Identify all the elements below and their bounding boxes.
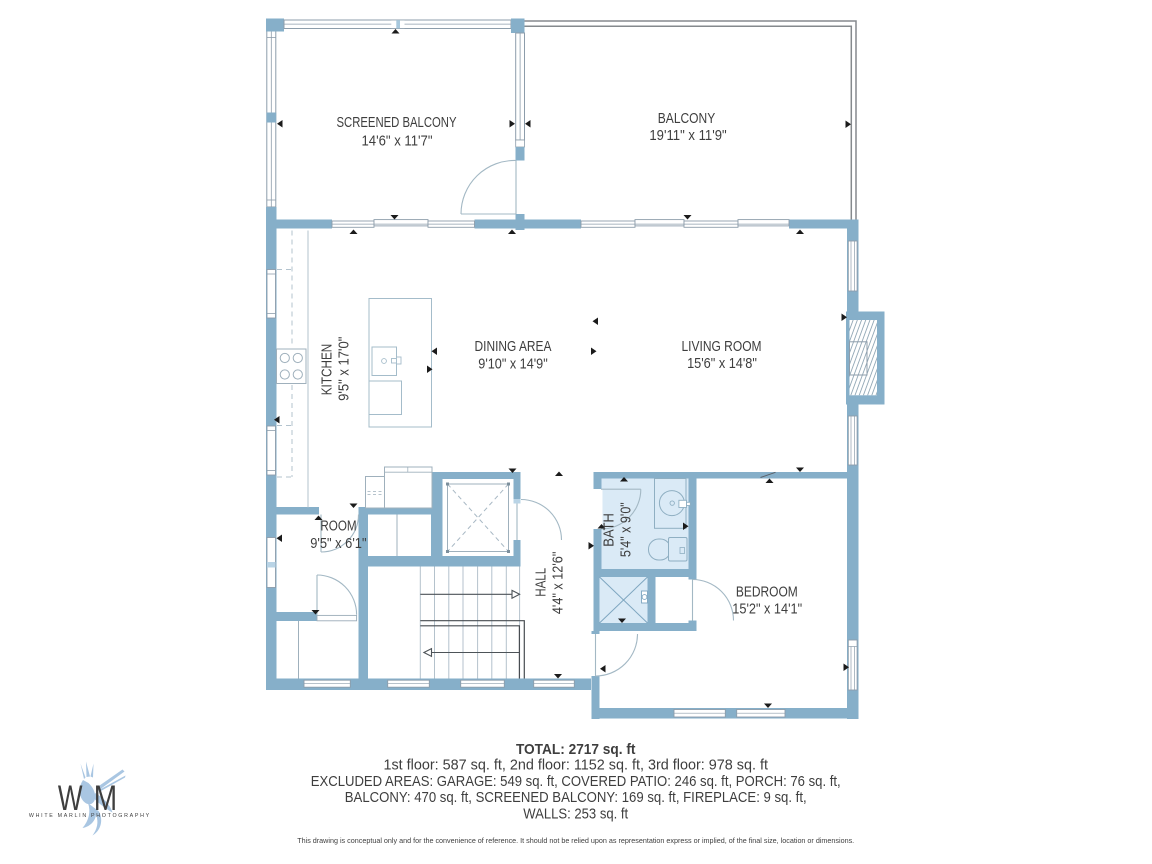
svg-text:14'6" x 11'7": 14'6" x 11'7" bbox=[362, 132, 433, 149]
svg-text:BATH: BATH bbox=[601, 513, 617, 547]
svg-text:HALL: HALL bbox=[532, 568, 549, 597]
svg-text:15'2" x 14'1": 15'2" x 14'1" bbox=[732, 601, 802, 617]
svg-text:WHITE MARLIN PHOTOGRAPHY: WHITE MARLIN PHOTOGRAPHY bbox=[29, 813, 151, 819]
svg-text:9'5" x 17'0": 9'5" x 17'0" bbox=[335, 337, 352, 401]
svg-text:This drawing is conceptual onl: This drawing is conceptual only and for … bbox=[297, 836, 854, 845]
svg-text:15'6" x 14'8": 15'6" x 14'8" bbox=[687, 355, 757, 371]
svg-text:4'4" x 12'6": 4'4" x 12'6" bbox=[550, 552, 566, 615]
svg-text:9'10" x 14'9": 9'10" x 14'9" bbox=[478, 356, 548, 372]
svg-text:M: M bbox=[94, 778, 117, 818]
svg-text:WALLS: 253 sq. ft: WALLS: 253 sq. ft bbox=[523, 806, 628, 822]
svg-text:EXCLUDED AREAS: GARAGE: 549 sq: EXCLUDED AREAS: GARAGE: 549 sq. ft, COVE… bbox=[311, 773, 841, 789]
svg-text:KITCHEN: KITCHEN bbox=[318, 344, 335, 396]
svg-text:ROOM: ROOM bbox=[320, 517, 356, 534]
svg-text:BALCONY: 470 sq. ft, SCREENED: BALCONY: 470 sq. ft, SCREENED BALCONY: 1… bbox=[345, 790, 807, 806]
svg-text:DINING AREA: DINING AREA bbox=[475, 338, 552, 354]
svg-text:19'11" x 11'9": 19'11" x 11'9" bbox=[649, 126, 726, 143]
svg-text:SCREENED BALCONY: SCREENED BALCONY bbox=[337, 114, 457, 131]
svg-text:9'5" x 6'1": 9'5" x 6'1" bbox=[310, 535, 366, 551]
svg-text:TOTAL: 2717 sq. ft: TOTAL: 2717 sq. ft bbox=[516, 741, 636, 758]
svg-text:BALCONY: BALCONY bbox=[658, 110, 716, 126]
svg-text:LIVING ROOM: LIVING ROOM bbox=[681, 338, 761, 354]
svg-text:BEDROOM: BEDROOM bbox=[736, 583, 798, 599]
svg-text:5'4" x 9'0": 5'4" x 9'0" bbox=[617, 502, 633, 557]
svg-text:1st floor: 587 sq. ft, 2nd flo: 1st floor: 587 sq. ft, 2nd floor: 1152 s… bbox=[383, 758, 768, 774]
